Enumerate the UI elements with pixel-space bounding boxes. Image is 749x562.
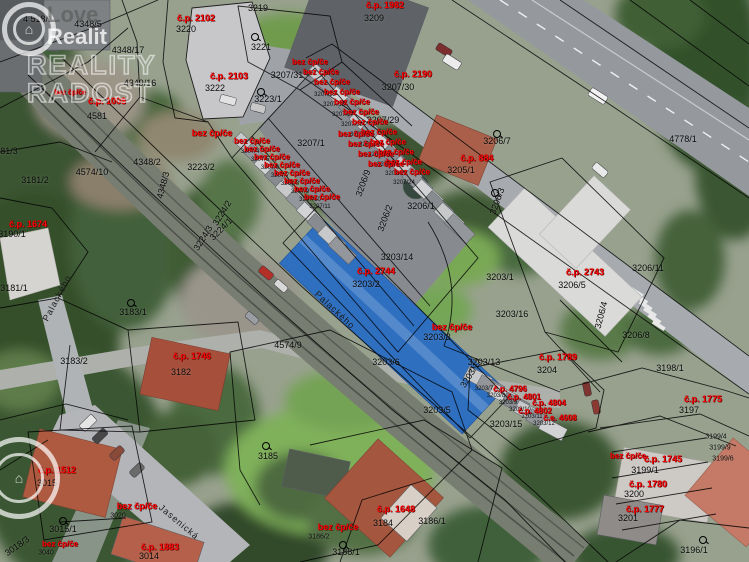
parcel-label: 3223/2 xyxy=(187,162,215,172)
building-label: č.p. 2190 xyxy=(394,69,432,79)
parcel-label: 4 518/1 xyxy=(23,14,53,24)
parcel-label: 3040 xyxy=(38,550,54,557)
building-label: bez čp/če xyxy=(334,98,370,107)
parcel-label: 3182 xyxy=(171,367,191,377)
building-label: č.p. 2744 xyxy=(357,266,395,276)
building-label: bez čp/če xyxy=(348,140,384,149)
parcel-label: 3222 xyxy=(205,83,225,93)
parcel-label: 4349/16 xyxy=(124,78,157,88)
parcel-label: 3203/1 xyxy=(486,272,514,282)
parcel-label: 3015/1 xyxy=(49,524,77,534)
parcel-label: 3207/30 xyxy=(382,82,415,92)
landuse-symbol-icon xyxy=(127,299,135,307)
parcel-label: 3206/4 xyxy=(593,300,610,329)
garage-parcel-label: 3207/24 xyxy=(393,180,415,186)
parcel-label: 3185 xyxy=(258,451,278,461)
parcel-label: 3206/2 xyxy=(376,203,395,232)
building-label: č.p. 1777 xyxy=(626,504,664,514)
building-label: bez čp/če xyxy=(338,130,374,139)
parcel-label: 3198/1 xyxy=(656,363,684,373)
parcel-label: 3203/17 xyxy=(458,357,484,390)
parcel-label: 3206/1 xyxy=(407,201,435,211)
parcel-label: 3199/6 xyxy=(712,456,733,463)
parcel-label: 3203/6 xyxy=(372,357,400,367)
parcel-label: 4348/3 xyxy=(155,170,172,199)
building-label: bez čp/če xyxy=(303,68,339,77)
building-label: bez čp/če xyxy=(343,108,379,117)
parcel-label: 3206/8 xyxy=(622,330,650,340)
aerial-cadastre-map[interactable]: 4 518/14348/54348/174349/164581322032193… xyxy=(0,0,749,562)
building-label: č.p. 2102 xyxy=(177,13,215,23)
building-label: č.p. 1746 xyxy=(173,351,211,361)
parcel-label: 3197 xyxy=(679,405,699,415)
building-label: bez čp/če xyxy=(432,322,473,332)
parcel-label: 3207/31 xyxy=(271,70,304,80)
building-label: bez čp/če xyxy=(394,168,430,177)
street-label: Palackého xyxy=(313,289,357,331)
building-label: č.p. 1780 xyxy=(629,479,667,489)
building-label: č.p. 1648 xyxy=(377,504,415,514)
building-label: bez čp/če xyxy=(117,501,158,511)
building-label: bez čp/če xyxy=(368,160,404,169)
parcel-label: 3207/1 xyxy=(297,138,325,148)
street-label: Palackého xyxy=(41,273,74,323)
building-label: č.e. 4608 xyxy=(543,414,576,423)
parcel-label: 3205/1 xyxy=(447,165,475,175)
building-label: č.p. 1982 xyxy=(366,0,404,10)
parcel-label: 3020 xyxy=(110,513,126,520)
parcel-label: 4574/10 xyxy=(76,167,109,177)
parcel-label: 3199/1 xyxy=(631,465,659,475)
parcel-label: 3184 xyxy=(373,518,393,528)
landuse-symbol-icon xyxy=(251,33,259,41)
parcel-label: 3203/3 xyxy=(423,332,451,342)
landuse-symbol-icon xyxy=(339,541,347,549)
parcel-label: 3219 xyxy=(248,3,268,13)
building-label: č.p. 2103 xyxy=(210,71,248,81)
parcel-label: 3183/2 xyxy=(60,356,88,366)
building-label: č.p. 1745 xyxy=(644,454,682,464)
building-label: č.p. 1789 xyxy=(539,352,577,362)
parcel-label: 3203/5 xyxy=(423,405,451,415)
landuse-symbol-icon xyxy=(257,88,265,96)
garage-parcel-label: 3207/11 xyxy=(309,204,330,210)
parcel-label: 3206/5 xyxy=(558,280,586,290)
parcel-label: 3220 xyxy=(176,24,196,34)
street-label: Jasenická xyxy=(157,502,201,541)
parcel-label: 3188/1 xyxy=(332,547,360,557)
landuse-symbol-icon xyxy=(493,130,501,138)
building-label: bez čp/če xyxy=(192,128,233,138)
parcel-label: 3018/3 xyxy=(3,534,31,558)
parcel-label: 3181/2 xyxy=(21,175,49,185)
parcel-label: 3203/16 xyxy=(496,309,529,319)
map-labels-layer: 4 518/14348/54348/174349/164581322032193… xyxy=(0,0,749,562)
parcel-label: 3199/9 xyxy=(709,445,730,452)
landuse-symbol-icon xyxy=(262,442,270,450)
parcel-label: 3196/1 xyxy=(680,545,708,555)
parcel-label: 3181/1 xyxy=(0,283,28,293)
garage-parcel-label: 3203/8 xyxy=(487,393,505,399)
building-label: č.p. 1674 xyxy=(9,219,47,229)
parcel-label: 3199/4 xyxy=(705,434,726,441)
parcel-label: 3186/2 xyxy=(308,534,329,541)
parcel-label: 4581 xyxy=(87,111,107,121)
parcel-label: 4778/1 xyxy=(669,134,697,144)
parcel-label: 4348/17 xyxy=(112,45,145,55)
garage-parcel-label: 3203/7 xyxy=(475,386,493,392)
parcel-label: 3203/14 xyxy=(381,252,414,262)
building-label: č.p. 884 xyxy=(460,153,493,163)
building-label: bez čp/če xyxy=(54,90,86,97)
building-label: č.p. 1008 xyxy=(88,96,126,106)
parcel-label: 3014 xyxy=(139,551,159,561)
parcel-label: 4574/9 xyxy=(274,340,302,350)
building-label: bez čp/če xyxy=(324,88,360,97)
building-label: bez čp/če xyxy=(42,540,78,549)
parcel-label: 4348/5 xyxy=(74,19,102,29)
parcel-label: 3203/2 xyxy=(352,279,380,289)
landuse-symbol-icon xyxy=(491,189,499,197)
building-label: bez čp/če xyxy=(314,78,350,87)
building-label: bez čp/če xyxy=(358,150,394,159)
landuse-symbol-icon xyxy=(699,536,707,544)
parcel-label: 3190/1 xyxy=(0,229,26,239)
building-label: č.p. 2743 xyxy=(566,267,604,277)
landuse-symbol-icon xyxy=(59,517,67,525)
building-label: bez čp/če xyxy=(610,452,646,461)
parcel-label: 3204 xyxy=(537,365,557,375)
parcel-label: 3201 xyxy=(618,513,638,523)
parcel-label: 3206/11 xyxy=(632,263,664,273)
parcel-label: 3200 xyxy=(624,489,644,499)
building-label: bez čp/če xyxy=(352,118,388,127)
parcel-label: 3206/9 xyxy=(354,168,373,197)
building-label: č.p. 1883 xyxy=(141,542,179,552)
parcel-label: 3221 xyxy=(251,42,271,52)
parcel-label: 3203/15 xyxy=(490,419,523,429)
parcel-label: 3181/3 xyxy=(0,146,18,156)
building-label: č.p. 1775 xyxy=(684,394,722,404)
parcel-label: 3015 xyxy=(37,478,57,488)
parcel-label: 3183/1 xyxy=(119,307,147,317)
parcel-label: 4348/2 xyxy=(133,157,161,167)
building-label: bez čp/če xyxy=(304,193,340,202)
parcel-label: 3209 xyxy=(364,13,384,23)
building-label: bez čp/če xyxy=(292,58,328,67)
parcel-label: 3186/1 xyxy=(418,516,446,526)
building-label: č.p. 1512 xyxy=(38,465,76,475)
building-label: bez čp/če xyxy=(318,522,359,532)
